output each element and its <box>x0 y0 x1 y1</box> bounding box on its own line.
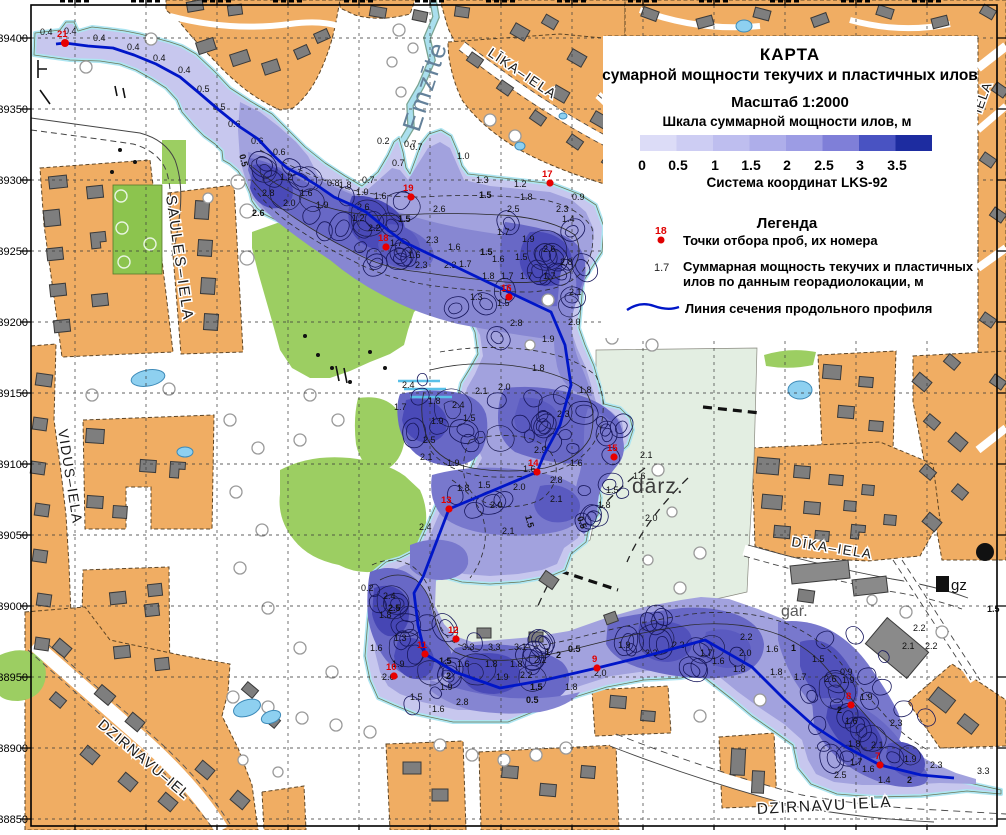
svg-text:3.1: 3.1 <box>514 642 527 652</box>
svg-text:2: 2 <box>446 671 451 681</box>
svg-text:1.8: 1.8 <box>339 180 352 190</box>
svg-text:39100: 39100 <box>0 459 28 471</box>
svg-text:1: 1 <box>711 157 719 173</box>
svg-text:0.5: 0.5 <box>568 644 581 654</box>
svg-text:0: 0 <box>638 157 646 173</box>
svg-text:3: 3 <box>856 157 864 173</box>
svg-text:2.0: 2.0 <box>739 648 752 658</box>
svg-text:2.2: 2.2 <box>925 641 938 651</box>
svg-text:2.1: 2.1 <box>640 450 653 460</box>
svg-text:Шкала суммарной мощности илов,: Шкала суммарной мощности илов, м <box>662 114 911 129</box>
svg-text:1.6: 1.6 <box>457 659 470 669</box>
svg-text:0.2: 0.2 <box>377 136 390 146</box>
svg-text:2: 2 <box>837 705 842 715</box>
svg-text:11: 11 <box>417 640 428 651</box>
svg-text:3.5: 3.5 <box>887 157 907 173</box>
svg-text:1.9: 1.9 <box>542 334 555 344</box>
svg-text:19: 19 <box>403 183 414 194</box>
svg-text:2.8: 2.8 <box>510 318 523 328</box>
svg-text:0.7: 0.7 <box>410 142 423 152</box>
svg-text:2.2: 2.2 <box>913 623 926 633</box>
svg-text:1.8: 1.8 <box>579 385 592 395</box>
svg-text:15: 15 <box>607 443 618 454</box>
svg-text:17: 17 <box>542 169 553 180</box>
svg-text:1.0: 1.0 <box>356 187 369 197</box>
svg-text:2.8: 2.8 <box>550 475 563 485</box>
svg-text:1.7: 1.7 <box>520 271 533 281</box>
svg-text:2.2: 2.2 <box>368 223 381 233</box>
svg-text:0.4: 0.4 <box>93 33 106 43</box>
svg-text:1.2: 1.2 <box>514 179 527 189</box>
svg-text:Суммарная мощность текучих и п: Суммарная мощность текучих и пластичных <box>683 259 974 274</box>
svg-text:1.8: 1.8 <box>598 500 611 510</box>
svg-text:Легенда: Легенда <box>757 215 818 232</box>
svg-text:3.3: 3.3 <box>977 766 990 776</box>
svg-text:10: 10 <box>386 662 397 673</box>
svg-text:2.1: 2.1 <box>475 386 488 396</box>
svg-text:2.8: 2.8 <box>456 697 469 707</box>
svg-text:12: 12 <box>448 625 459 636</box>
svg-text:2.6: 2.6 <box>433 204 446 214</box>
svg-text:0.2: 0.2 <box>361 583 374 593</box>
svg-text:1.7: 1.7 <box>394 402 407 412</box>
svg-text:1.5: 1.5 <box>515 252 528 262</box>
svg-text:0.5: 0.5 <box>668 157 688 173</box>
svg-text:1.5: 1.5 <box>480 247 493 257</box>
svg-text:1.9: 1.9 <box>431 416 444 426</box>
svg-text:1.8: 1.8 <box>510 659 523 669</box>
svg-text:2.0: 2.0 <box>283 198 296 208</box>
svg-text:13: 13 <box>441 495 452 506</box>
svg-text:18: 18 <box>378 233 389 244</box>
svg-text:1.6: 1.6 <box>862 764 875 774</box>
svg-text:1.3: 1.3 <box>476 175 489 185</box>
svg-text:0.9: 0.9 <box>572 192 585 202</box>
svg-text:1.6: 1.6 <box>374 191 387 201</box>
svg-text:1.9: 1.9 <box>904 754 917 764</box>
svg-text:2.4: 2.4 <box>383 591 396 601</box>
svg-text:1: 1 <box>791 643 796 653</box>
svg-text:2.5: 2.5 <box>834 770 847 780</box>
svg-text:1.8: 1.8 <box>532 363 545 373</box>
svg-text:21: 21 <box>57 29 68 40</box>
svg-text:2.6: 2.6 <box>252 208 265 218</box>
svg-text:39250: 39250 <box>0 246 28 258</box>
svg-text:1.5: 1.5 <box>463 413 476 423</box>
svg-text:2.6: 2.6 <box>824 674 837 684</box>
svg-text:1.7: 1.7 <box>850 757 863 767</box>
svg-text:1.7: 1.7 <box>501 271 514 281</box>
svg-text:0.4: 0.4 <box>153 53 166 63</box>
svg-text:1.4: 1.4 <box>562 214 575 224</box>
svg-text:1.5: 1.5 <box>812 654 825 664</box>
svg-text:39150: 39150 <box>0 388 28 400</box>
svg-text:0.8: 0.8 <box>327 178 340 188</box>
svg-text:2.8: 2.8 <box>560 257 573 267</box>
svg-text:1.6: 1.6 <box>408 250 421 260</box>
svg-text:0.5: 0.5 <box>526 695 539 705</box>
svg-text:2.2: 2.2 <box>740 632 753 642</box>
svg-text:2.4: 2.4 <box>452 400 465 410</box>
svg-text:1.7: 1.7 <box>459 259 472 269</box>
svg-text:2.5: 2.5 <box>814 157 834 173</box>
svg-text:2.0: 2.0 <box>513 482 526 492</box>
svg-text:0.4: 0.4 <box>40 27 53 37</box>
svg-text:2.4: 2.4 <box>402 380 415 390</box>
svg-text:1.6: 1.6 <box>570 458 583 468</box>
svg-text:39000: 39000 <box>0 601 28 613</box>
svg-text:2.1: 2.1 <box>902 641 915 651</box>
svg-text:2: 2 <box>783 157 791 173</box>
svg-text:2.3: 2.3 <box>930 760 943 770</box>
svg-text:1.4: 1.4 <box>878 775 891 785</box>
svg-text:dārz.: dārz. <box>632 475 684 498</box>
svg-text:1.9: 1.9 <box>860 692 873 702</box>
svg-text:38850: 38850 <box>0 814 28 826</box>
svg-text:18: 18 <box>655 225 667 237</box>
svg-text:38950: 38950 <box>0 672 28 684</box>
svg-text:Точки отбора проб, их номера: Точки отбора проб, их номера <box>683 233 878 248</box>
svg-text:1.8: 1.8 <box>770 667 783 677</box>
svg-text:8: 8 <box>846 691 851 702</box>
svg-text:1.8: 1.8 <box>565 682 578 692</box>
svg-text:3.3: 3.3 <box>488 642 501 652</box>
svg-text:1.9: 1.9 <box>316 200 329 210</box>
svg-text:2.3: 2.3 <box>415 260 428 270</box>
svg-text:2.6: 2.6 <box>543 244 556 254</box>
svg-text:1.6: 1.6 <box>370 643 383 653</box>
svg-text:1.9: 1.9 <box>522 234 535 244</box>
svg-text:1.3: 1.3 <box>394 633 407 643</box>
svg-text:1.8: 1.8 <box>520 192 533 202</box>
svg-text:1.8: 1.8 <box>379 610 392 620</box>
svg-text:1.9: 1.9 <box>618 640 631 650</box>
svg-text:1.7: 1.7 <box>794 672 807 682</box>
svg-text:1.8: 1.8 <box>428 396 441 406</box>
svg-text:1.7: 1.7 <box>497 227 510 237</box>
svg-text:gz: gz <box>951 577 967 594</box>
svg-text:1.9: 1.9 <box>496 672 509 682</box>
svg-text:1.6: 1.6 <box>448 242 461 252</box>
svg-text:16: 16 <box>501 283 512 294</box>
svg-text:2.1: 2.1 <box>871 740 884 750</box>
svg-text:2.0: 2.0 <box>645 513 658 523</box>
svg-text:сумарной мощности текучих и п: сумарной мощности текучих и пластичных и… <box>602 67 978 84</box>
svg-text:0.7: 0.7 <box>392 158 405 168</box>
svg-text:1.2: 1.2 <box>352 213 365 223</box>
svg-text:2: 2 <box>556 650 561 660</box>
svg-text:1.7: 1.7 <box>700 648 713 658</box>
svg-text:7: 7 <box>875 751 880 762</box>
svg-text:0.7: 0.7 <box>362 175 375 185</box>
svg-text:2.0: 2.0 <box>568 317 581 327</box>
svg-text:1.6: 1.6 <box>766 644 779 654</box>
svg-text:0.4: 0.4 <box>127 42 140 52</box>
svg-text:1.8: 1.8 <box>485 659 498 669</box>
svg-text:14: 14 <box>528 458 539 469</box>
svg-text:1.6: 1.6 <box>432 704 445 714</box>
svg-text:39400: 39400 <box>0 33 28 45</box>
svg-text:1.7: 1.7 <box>654 262 669 274</box>
svg-text:1.8: 1.8 <box>457 483 470 493</box>
svg-text:1.0: 1.0 <box>457 151 470 161</box>
svg-text:1.6: 1.6 <box>712 656 725 666</box>
svg-text:1.5: 1.5 <box>606 485 619 495</box>
svg-text:39350: 39350 <box>0 104 28 116</box>
svg-text:39300: 39300 <box>0 175 28 187</box>
svg-text:2.1: 2.1 <box>569 287 582 297</box>
svg-text:1.7: 1.7 <box>543 271 556 281</box>
svg-text:Линия сечения продольного проф: Линия сечения продольного профиля <box>685 301 932 316</box>
svg-text:2.5: 2.5 <box>507 204 520 214</box>
svg-text:1.5: 1.5 <box>478 480 491 490</box>
svg-text:2.3: 2.3 <box>426 235 439 245</box>
svg-text:1.2: 1.2 <box>280 172 293 182</box>
svg-text:2.2: 2.2 <box>520 670 533 680</box>
svg-text:gar.: gar. <box>781 603 808 620</box>
svg-text:9: 9 <box>592 654 597 665</box>
svg-text:2.0: 2.0 <box>498 382 511 392</box>
svg-text:1: 1 <box>545 647 550 657</box>
svg-text:2.4: 2.4 <box>419 522 432 532</box>
svg-text:Масштаб 1:2000: Масштаб 1:2000 <box>731 94 849 111</box>
svg-text:1.6: 1.6 <box>845 716 858 726</box>
svg-text:1.6: 1.6 <box>492 254 505 264</box>
svg-text:0.4: 0.4 <box>178 65 191 75</box>
svg-text:1.9: 1.9 <box>440 682 453 692</box>
svg-text:0.9: 0.9 <box>840 667 853 677</box>
svg-text:2.0: 2.0 <box>490 500 503 510</box>
svg-text:1.8: 1.8 <box>733 664 746 674</box>
svg-text:2.1: 2.1 <box>550 494 563 504</box>
svg-text:2.8: 2.8 <box>262 188 275 198</box>
svg-text:1.6: 1.6 <box>300 188 313 198</box>
svg-text:2.1: 2.1 <box>420 452 433 462</box>
svg-text:Система координат LKS-92: Система координат LKS-92 <box>707 175 888 190</box>
svg-text:1.5: 1.5 <box>741 157 761 173</box>
svg-text:39050: 39050 <box>0 530 28 542</box>
svg-text:илов по данным георадиолокации: илов по данным георадиолокации, м <box>683 274 924 289</box>
svg-text:1.9: 1.9 <box>447 458 460 468</box>
svg-text:2: 2 <box>907 775 912 785</box>
svg-text:38900: 38900 <box>0 743 28 755</box>
svg-text:1.3: 1.3 <box>470 292 483 302</box>
svg-text:2.3: 2.3 <box>556 204 569 214</box>
svg-text:1.5: 1.5 <box>398 214 411 224</box>
svg-text:КАРТА: КАРТА <box>760 45 820 64</box>
svg-text:1.5: 1.5 <box>479 190 492 200</box>
svg-text:2.5: 2.5 <box>423 435 436 445</box>
svg-text:3.3: 3.3 <box>462 642 475 652</box>
svg-text:1.5: 1.5 <box>410 692 423 702</box>
svg-text:39200: 39200 <box>0 317 28 329</box>
svg-text:2.1: 2.1 <box>502 526 515 536</box>
svg-text:2.3: 2.3 <box>890 718 903 728</box>
